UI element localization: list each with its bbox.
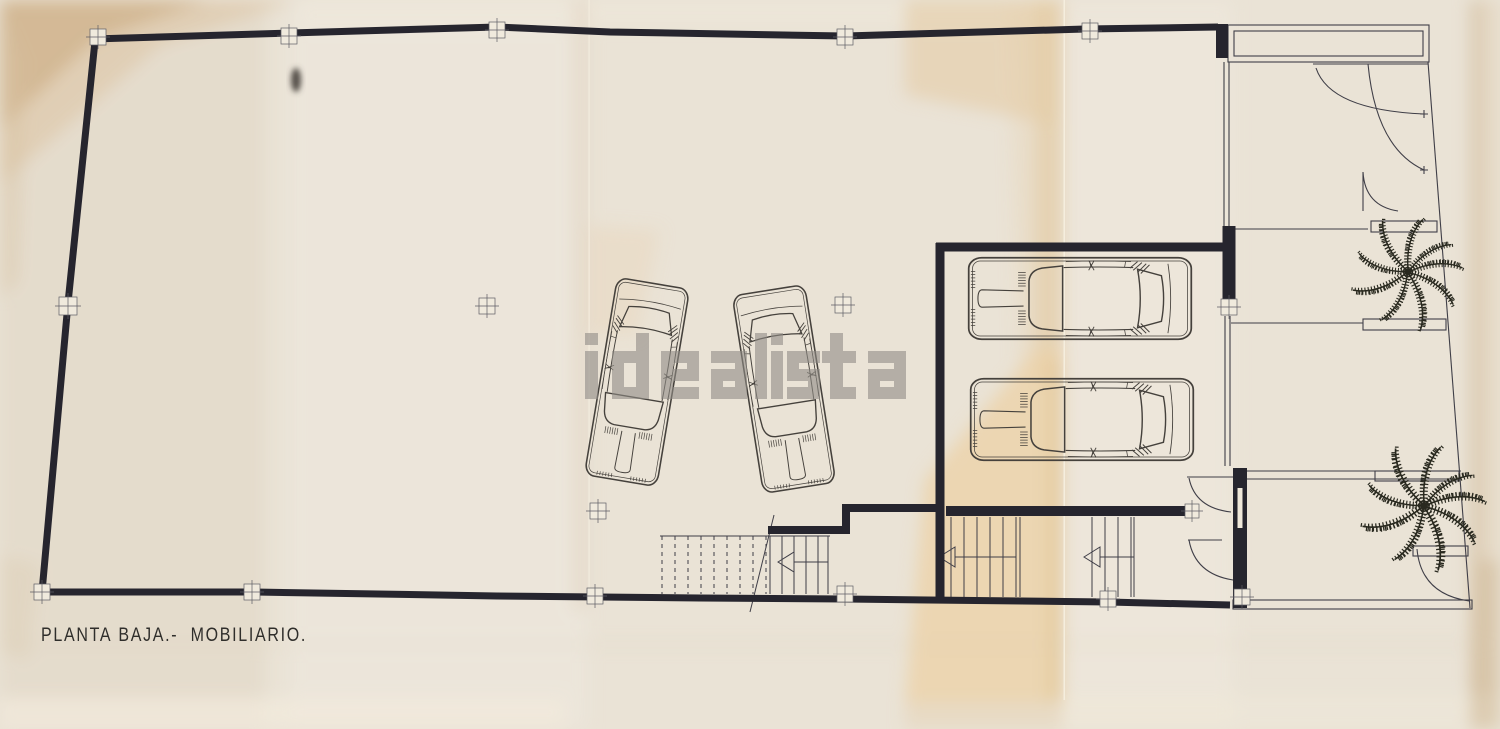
svg-text:PLANTA BAJA.- MOBILIARIO.: PLANTA BAJA.- MOBILIARIO.: [41, 625, 307, 646]
